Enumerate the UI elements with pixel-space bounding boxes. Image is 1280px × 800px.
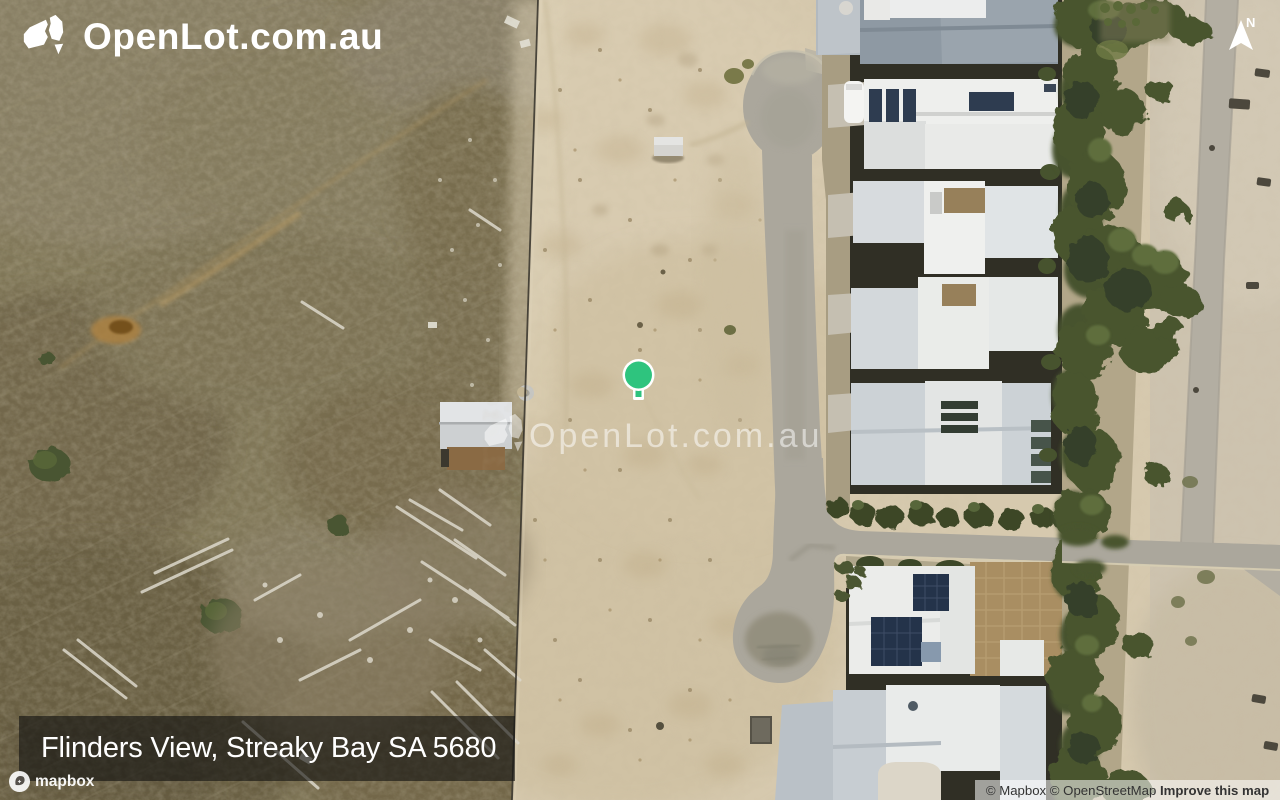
- svg-text:N: N: [1246, 15, 1255, 30]
- svg-text:OpenLot.com.au: OpenLot.com.au: [529, 417, 822, 455]
